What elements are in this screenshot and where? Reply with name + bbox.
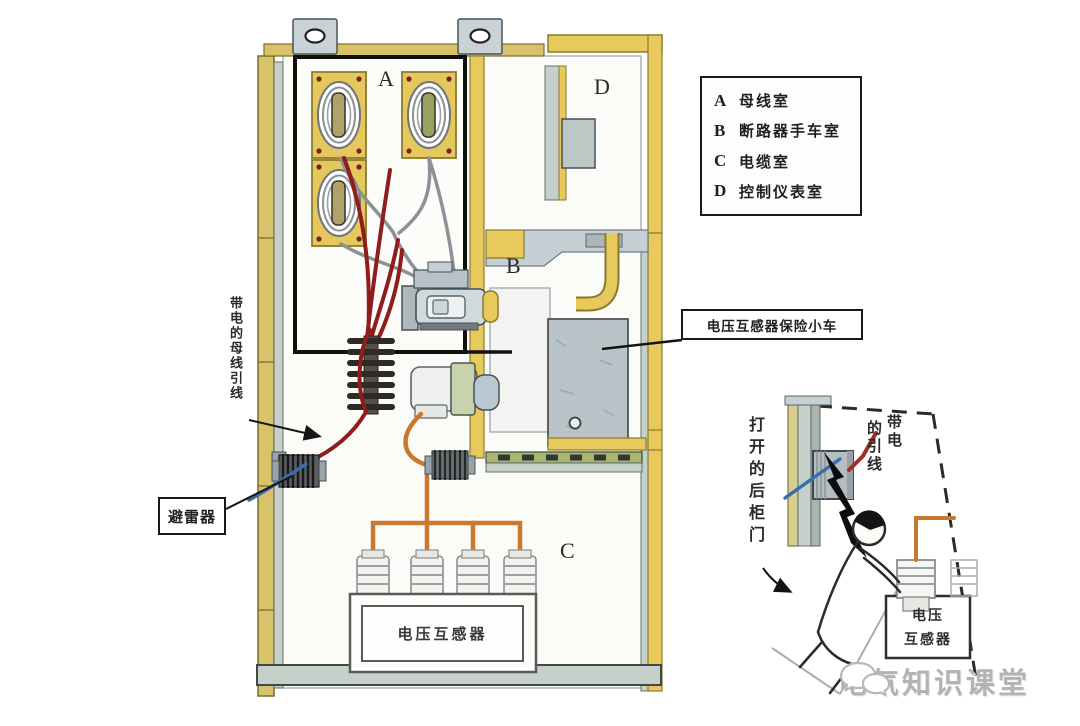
legend-label: 母线室 [739, 90, 790, 111]
cart-o-mark [570, 418, 581, 429]
busbar-insulator [312, 72, 366, 158]
live-lead-label-left: 的引线 [866, 420, 881, 474]
legend-row: C 电缆室 [714, 151, 848, 172]
dashed-door-outline [817, 406, 933, 414]
instrument-box [562, 119, 595, 168]
legend-row: B 断路器手车室 [714, 120, 848, 141]
legend-row: D 控制仪表室 [714, 181, 848, 202]
lifting-lug [458, 19, 502, 54]
vt-main-label: 电压互感器 [362, 606, 523, 661]
watermark: 电气知识课堂 [838, 660, 1030, 702]
legend-label: 电缆室 [739, 151, 790, 172]
compartment-a-letter: A [378, 66, 394, 92]
vt-fuse-cart-callout: 电压互感器保险小车 [681, 309, 863, 340]
live-busbar-lead-label: 带电的母线引线 [229, 296, 242, 401]
mini-wall [788, 402, 798, 546]
mid-ribbed-component [425, 450, 475, 480]
legend-key: A [714, 91, 729, 111]
arrester-callout: 避雷器 [158, 497, 226, 535]
compartment-c-letter: C [560, 538, 575, 564]
legend-key: B [714, 121, 729, 141]
lifting-lug [293, 19, 337, 54]
compartment-d-top-band [548, 35, 662, 52]
busbar-insulator [402, 72, 456, 158]
chat-bubbles-icon [838, 660, 890, 698]
mini-vt-label-line2: 互感器 [904, 629, 952, 649]
opened-rear-door-label: 打开的后柜门 [746, 416, 762, 548]
ghost-bushing [951, 560, 977, 596]
mini-orange-wire [916, 518, 954, 560]
live-lead-label-right: 带电 [886, 414, 901, 450]
switchgear-diagram-page: A B C D A 母线室 B 断路器手车室 C 电缆室 D 控制仪表室 电压互… [0, 0, 1080, 726]
compartment-d-letter: D [594, 74, 610, 100]
legend-label: 控制仪表室 [739, 181, 824, 202]
rear-door-panel [648, 233, 662, 691]
legend-box: A 母线室 B 断路器手车室 C 电缆室 D 控制仪表室 [700, 76, 862, 216]
door-label-arrow [763, 568, 789, 591]
legend-key: C [714, 151, 729, 171]
legend-row: A 母线室 [714, 90, 848, 111]
mini-vt-label: 电压 互感器 [886, 600, 970, 654]
left-wall-panel [258, 56, 274, 696]
mini-vt-label-line1: 电压 [912, 605, 944, 625]
compartment-b-letter: B [506, 253, 521, 279]
legend-label: 断路器手车室 [739, 120, 841, 141]
legend-key: D [714, 181, 729, 201]
